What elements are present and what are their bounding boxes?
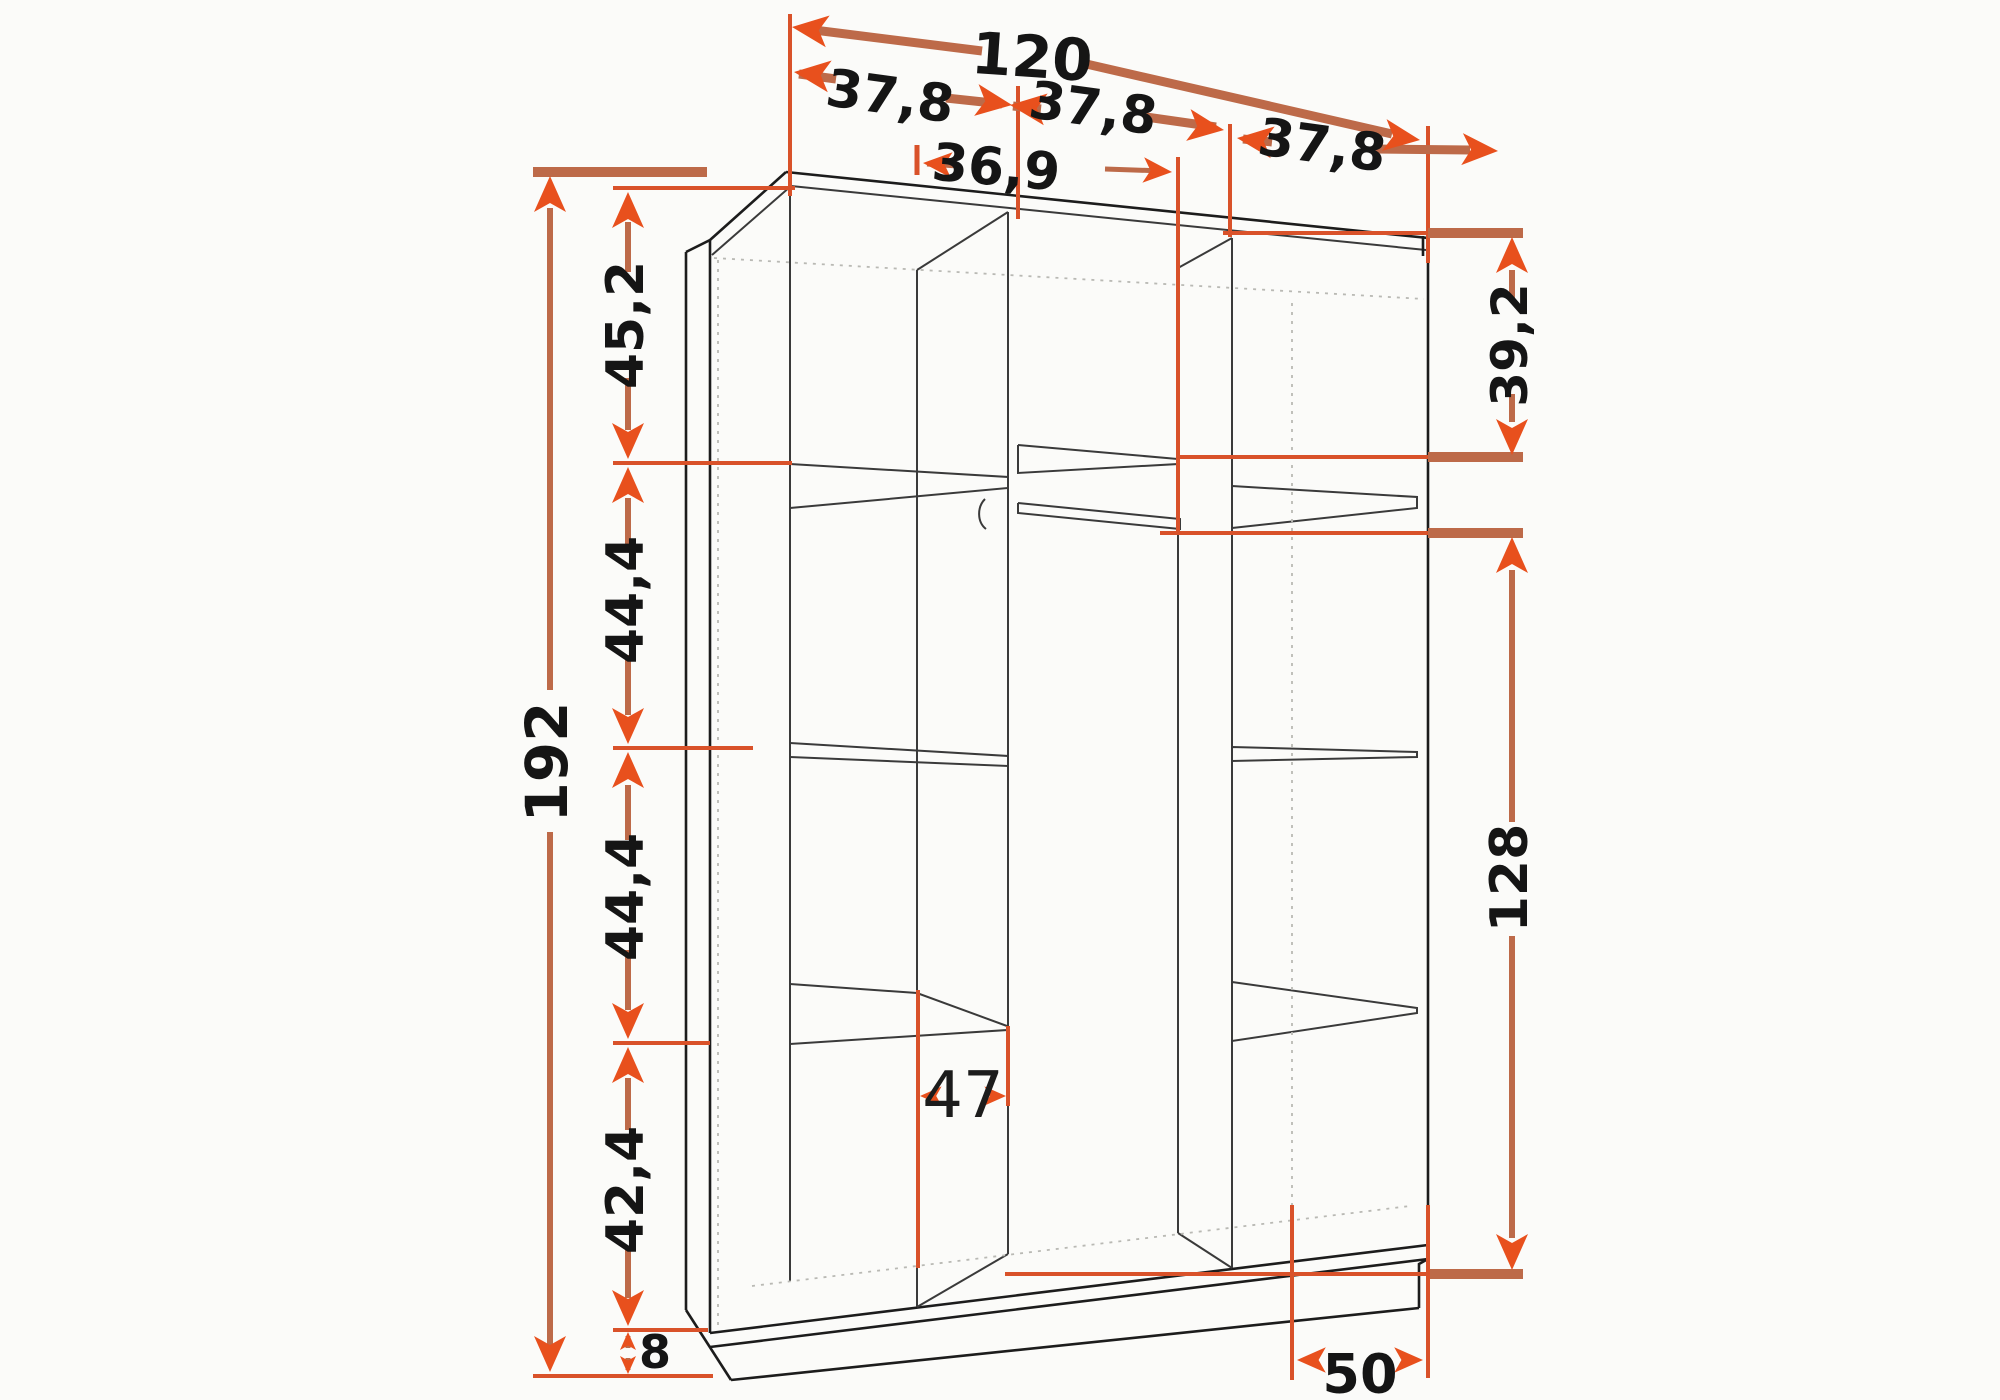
label-hanging-height: 128 xyxy=(1480,824,1540,933)
label-segment-4: 42,4 xyxy=(596,1126,656,1254)
label-section-width-1: 37,8 xyxy=(822,58,957,135)
left-section-shelves xyxy=(790,464,1008,1044)
label-segment-3: 44,4 xyxy=(596,833,656,961)
diagram-canvas: 120 37,8 37,8 37,8 36,9 192 45,2 44,4 44… xyxy=(0,0,2000,1400)
wardrobe-outline xyxy=(686,172,1428,1380)
label-section-width-2: 37,8 xyxy=(1025,70,1160,147)
label-section-width-3: 37,8 xyxy=(1254,107,1389,184)
dimension-shafts xyxy=(550,29,1512,1370)
label-segment-2: 44,4 xyxy=(596,536,656,664)
label-plinth-height: 8 xyxy=(639,1325,671,1379)
label-middle-clear-width: 36,9 xyxy=(929,133,1062,204)
label-segment-1: 45,2 xyxy=(596,261,656,389)
right-section-shelves xyxy=(1232,486,1417,1041)
label-base-depth: 50 xyxy=(1322,1343,1397,1400)
rail-hook-icon xyxy=(979,499,986,529)
hidden-edges xyxy=(714,258,1424,1327)
extension-lines xyxy=(533,14,1523,1380)
middle-section-shelf-and-rail xyxy=(979,445,1180,529)
divider-left xyxy=(917,212,1008,1307)
label-overall-height: 192 xyxy=(513,701,581,822)
label-shelf-depth: 47 xyxy=(922,1059,1003,1133)
wardrobe-dimension-diagram: 120 37,8 37,8 37,8 36,9 192 45,2 44,4 44… xyxy=(0,0,2000,1400)
dimension-labels: 120 37,8 37,8 37,8 36,9 192 45,2 44,4 44… xyxy=(513,19,1540,1400)
dimension-arrowheads xyxy=(534,11,1528,1374)
label-right-top-height: 39,2 xyxy=(1481,283,1539,406)
divider-right xyxy=(1178,238,1232,1268)
